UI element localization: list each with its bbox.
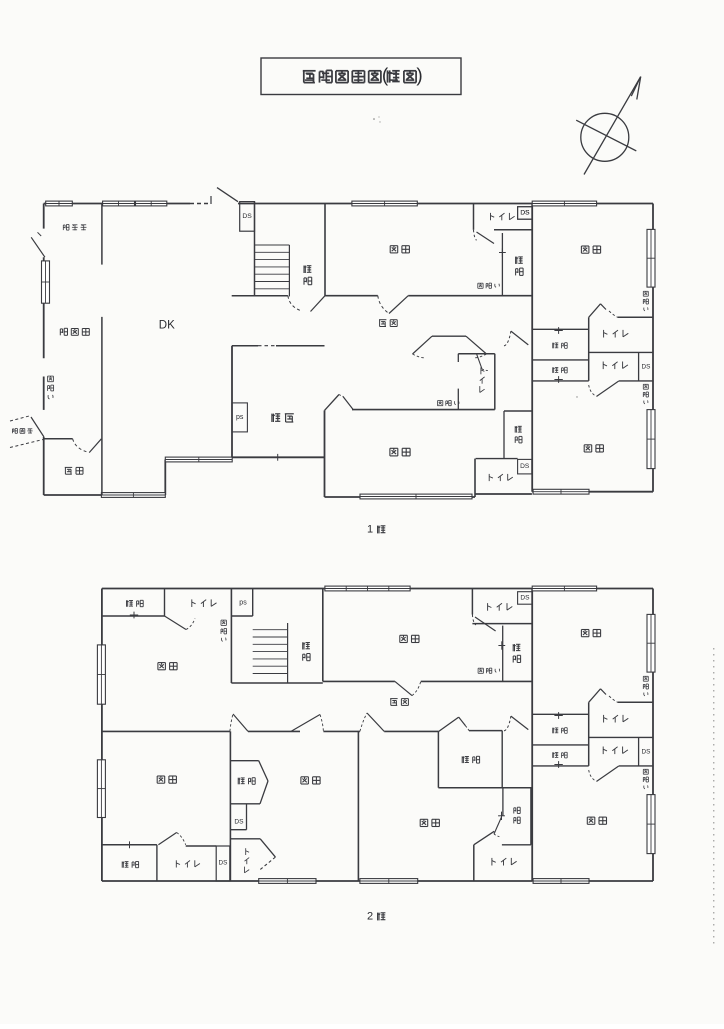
svg-text:ps: ps xyxy=(236,414,244,421)
svg-text:DS: DS xyxy=(242,213,252,220)
svg-text:DS: DS xyxy=(642,363,651,370)
svg-text:DS: DS xyxy=(234,819,244,826)
svg-text:1: 1 xyxy=(367,524,373,536)
svg-text:DS: DS xyxy=(520,463,530,470)
svg-text:): ) xyxy=(416,66,422,87)
svg-text:2: 2 xyxy=(367,911,373,923)
svg-text:DS: DS xyxy=(219,860,228,867)
svg-text:DS: DS xyxy=(520,595,530,602)
svg-text:DS: DS xyxy=(520,210,530,217)
svg-text:ps: ps xyxy=(239,599,247,606)
svg-text:DK: DK xyxy=(159,320,175,332)
svg-text:DS: DS xyxy=(642,748,651,755)
